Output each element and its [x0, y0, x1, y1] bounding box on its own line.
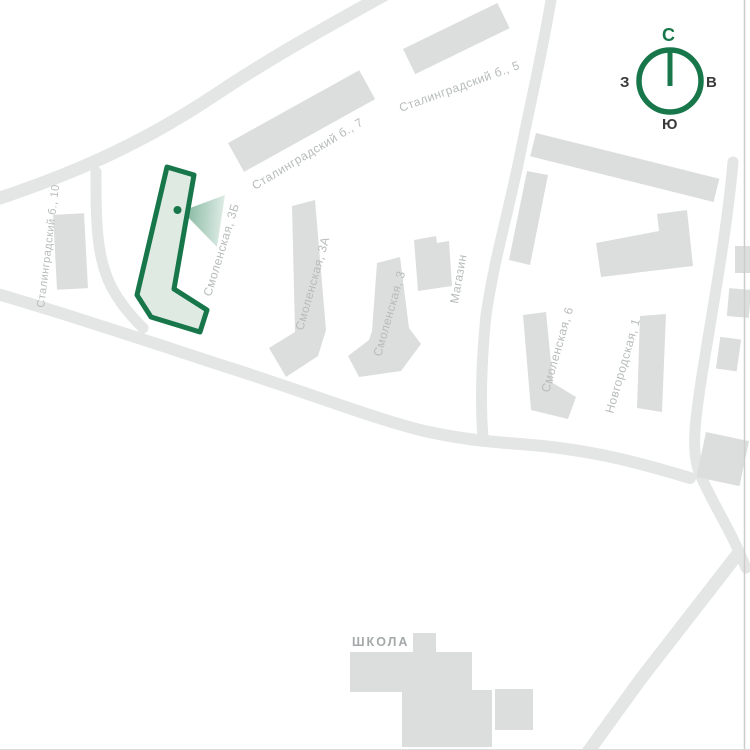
compass-north-label: С — [662, 25, 675, 45]
building-school — [350, 633, 492, 747]
building-east-edge-1 — [735, 246, 750, 273]
building-east-loop-square — [696, 432, 749, 486]
compass-west-label: З — [620, 74, 629, 91]
building-novgorodskaya-1 — [637, 314, 666, 412]
building-stalingradsky-10 — [53, 213, 88, 290]
compass-rose-icon: С З В Ю — [620, 25, 717, 133]
building-east-block-middle — [596, 210, 693, 277]
label-school: ШКОЛА — [352, 635, 409, 649]
viewpoint-dot-icon — [174, 206, 182, 214]
road-central-diagonal — [0, 293, 690, 478]
building-school-annex — [495, 689, 533, 730]
highlighted-building-group — [137, 167, 225, 332]
map-canvas: Сталинградский б., 10 Сталинградский б.,… — [0, 0, 750, 750]
label-magazin: Магазин — [447, 253, 469, 304]
highlighted-building-smolenskaya-3b[interactable] — [137, 167, 207, 332]
building-magazin — [414, 236, 452, 291]
building-east-edge-3 — [716, 337, 741, 372]
label-novgorodskaya-1: Новгородская, 1 — [602, 317, 643, 415]
building-east-edge-2 — [727, 288, 750, 318]
road-southeast-diagonal — [588, 555, 737, 750]
building-stalingradsky-5 — [403, 3, 510, 74]
site-plan-map: Сталинградский б., 10 Сталинградский б.,… — [0, 0, 750, 750]
building-east-block-top — [530, 133, 719, 202]
compass-east-label: В — [706, 74, 717, 91]
road-west-vertical — [96, 172, 143, 328]
compass-south-label: Ю — [662, 116, 677, 133]
